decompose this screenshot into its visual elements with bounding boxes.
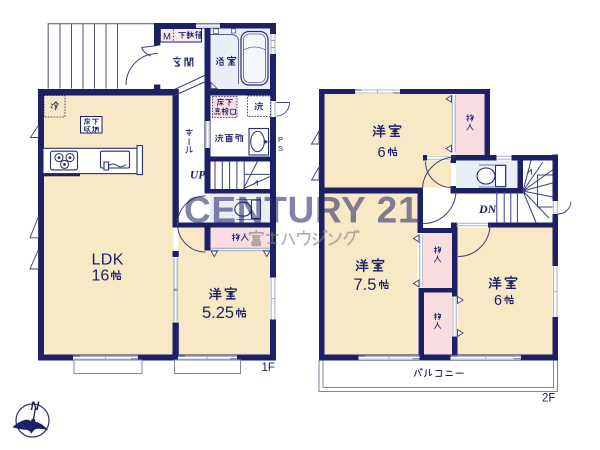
svg-text:6: 6 bbox=[378, 145, 386, 161]
svg-text:16: 16 bbox=[92, 268, 110, 285]
svg-text:S: S bbox=[278, 144, 283, 153]
svg-text:P: P bbox=[278, 135, 283, 144]
svg-text:6: 6 bbox=[494, 293, 502, 309]
svg-text:5.25: 5.25 bbox=[202, 304, 234, 322]
svg-text:2F: 2F bbox=[542, 393, 555, 405]
svg-text:CENTURY 21: CENTURY 21 bbox=[184, 190, 419, 231]
svg-text:7.5: 7.5 bbox=[354, 276, 377, 294]
svg-text:1F: 1F bbox=[262, 362, 275, 374]
svg-text:LDK: LDK bbox=[92, 252, 124, 269]
svg-text:UP: UP bbox=[190, 170, 206, 182]
svg-text:M: M bbox=[163, 32, 171, 43]
svg-text:DN: DN bbox=[478, 202, 498, 216]
